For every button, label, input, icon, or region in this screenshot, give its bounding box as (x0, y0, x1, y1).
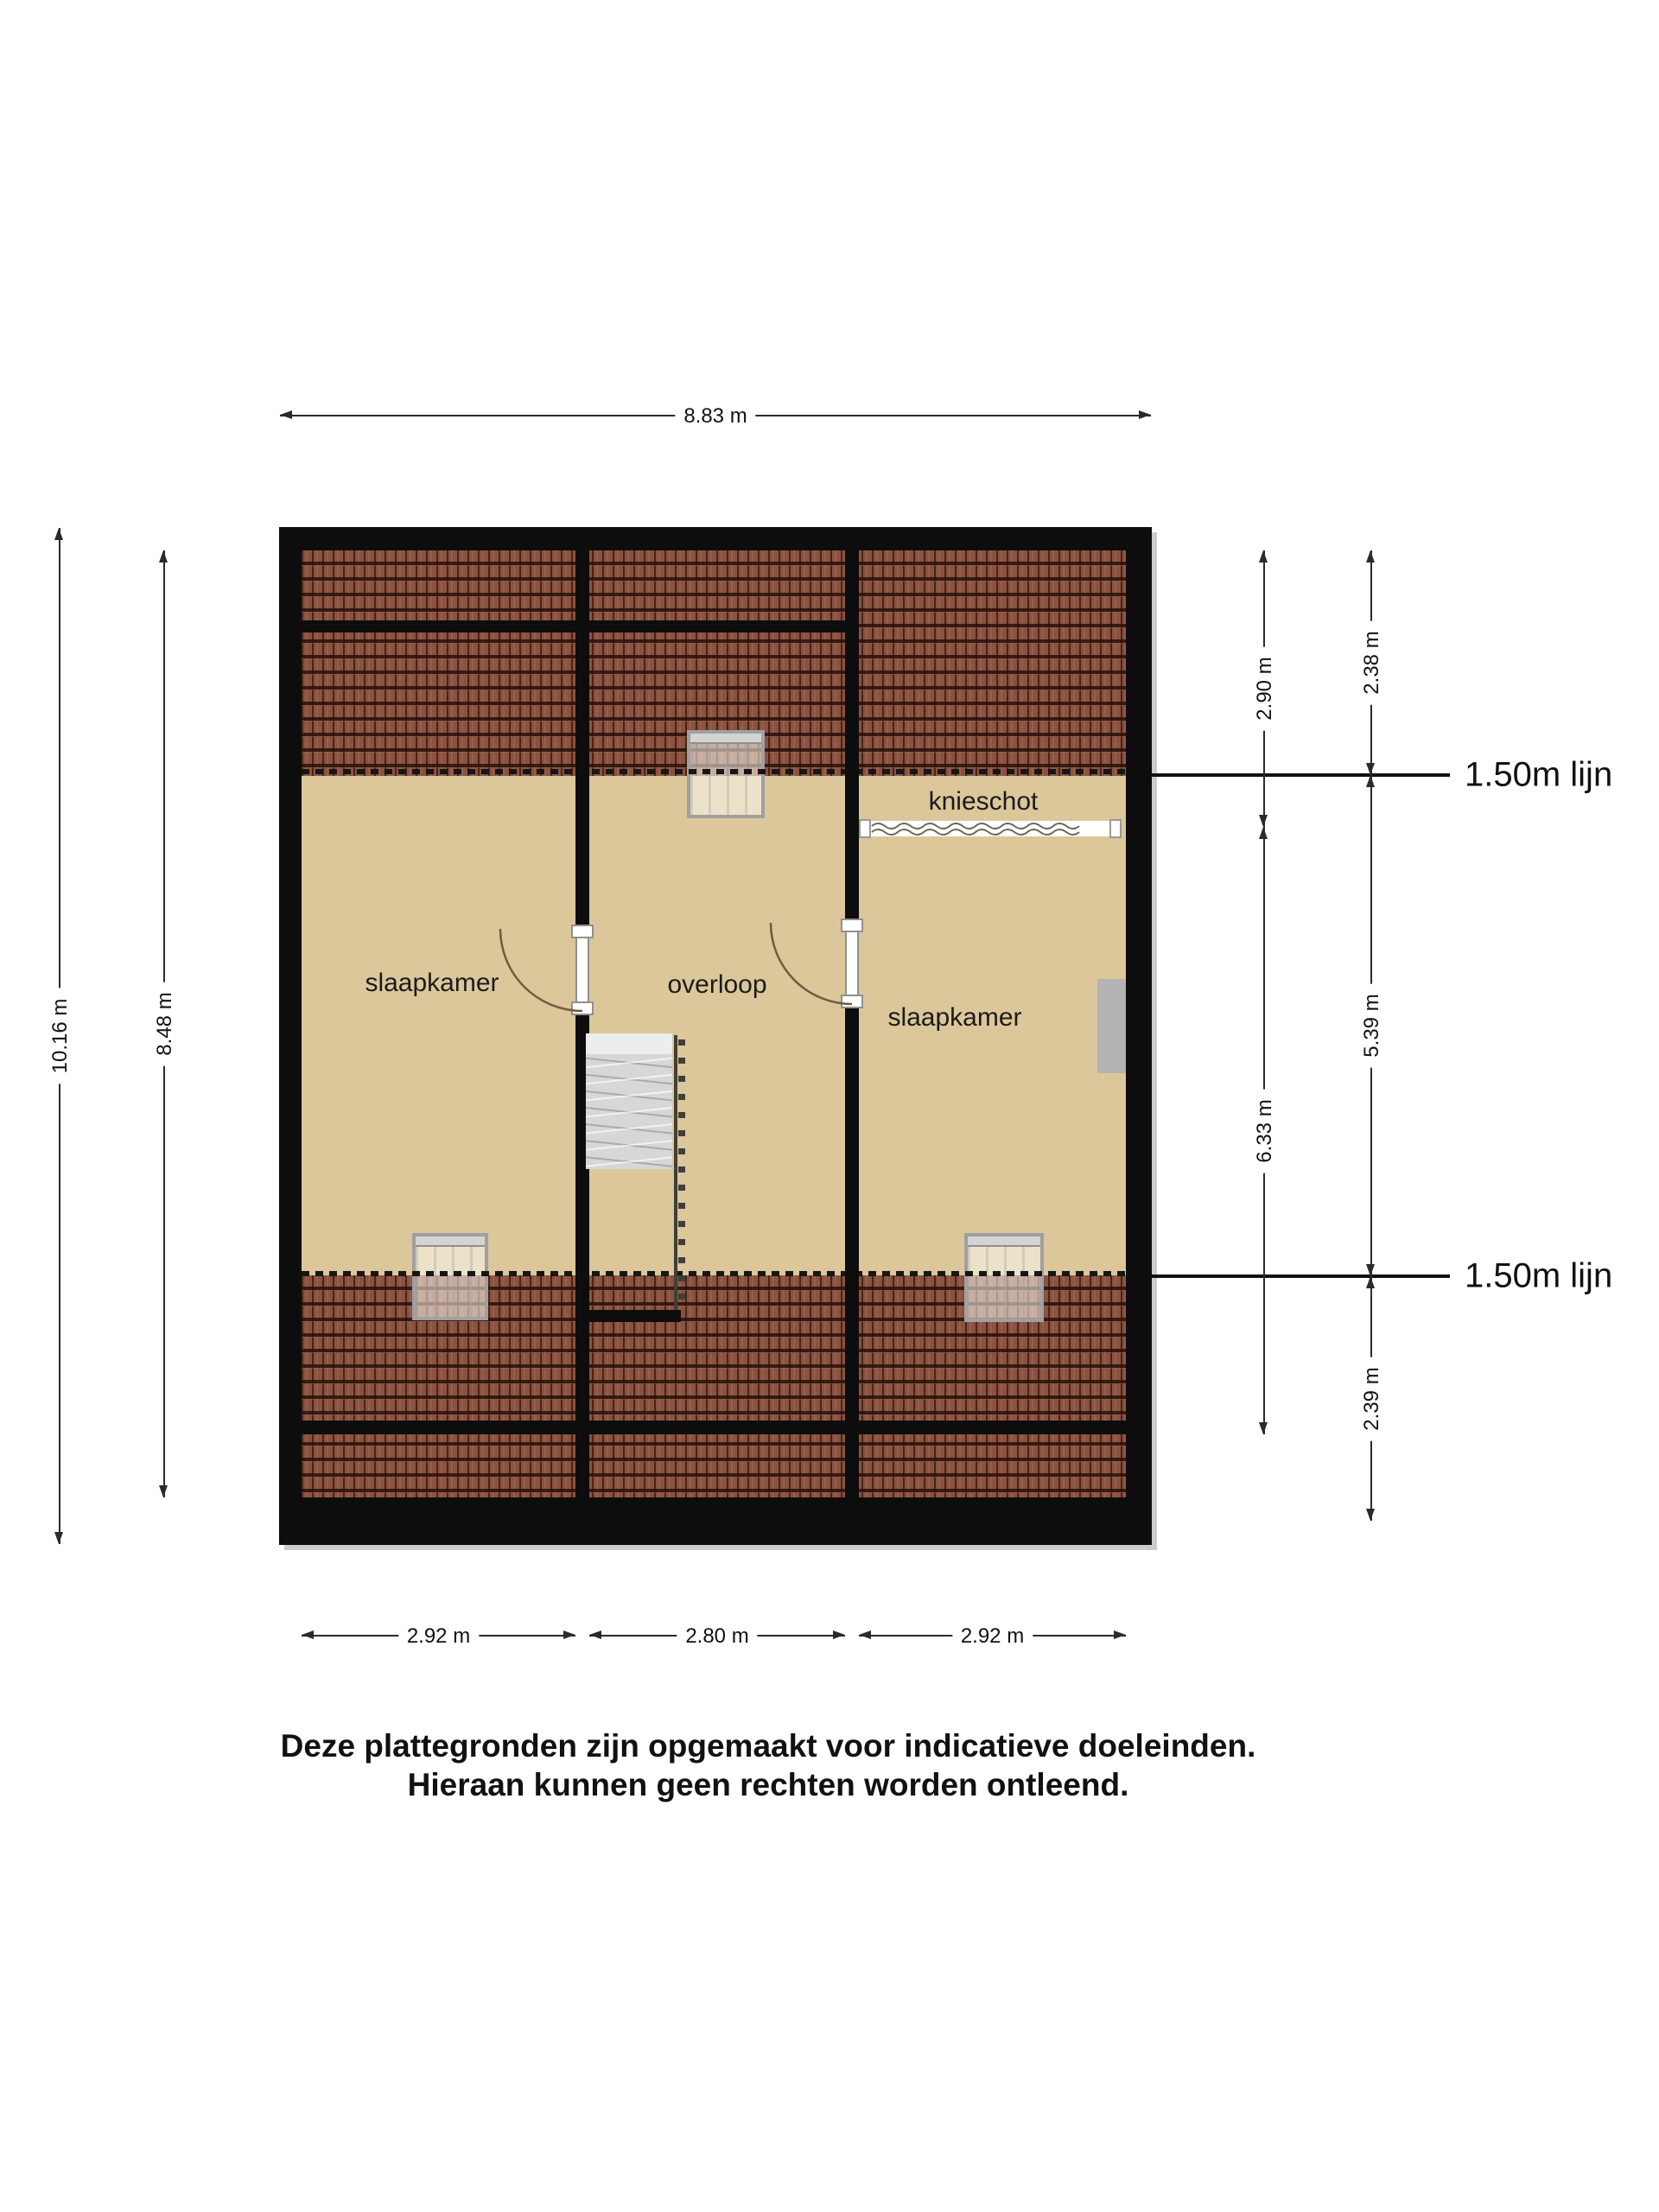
door-swing-arc-right (771, 923, 852, 1004)
dimension-top-width: 8.83 m (280, 415, 1151, 416)
dimension-value: 2.80 m (677, 1624, 757, 1649)
dimension-value: 6.33 m (1253, 1089, 1277, 1173)
dimension-value: 2.92 m (398, 1624, 479, 1649)
knee-wall-label: knieschot (929, 787, 1039, 817)
dimension-bottom-right: 2.92 m (859, 1635, 1126, 1637)
knee-wall-wave-1 (872, 823, 1079, 829)
room-label-bedroom-left: slaapkamer (365, 969, 499, 998)
ref-line-150-top-label: 1.50m lijn (1465, 756, 1612, 795)
dimension-right-outer-bottom: 2.39 m (1370, 1276, 1372, 1521)
disclaimer-line-2: Hieraan kunnen geen rechten worden ontle… (163, 1765, 1373, 1804)
dimension-value: 2.39 m (1360, 1357, 1384, 1440)
dimension-value: 2.92 m (952, 1624, 1033, 1649)
ref-line-150-bottom-label: 1.50m lijn (1465, 1257, 1612, 1296)
disclaimer: Deze plattegronden zijn opgemaakt voor i… (163, 1726, 1373, 1804)
dimension-right-outer-middle: 5.39 m (1370, 775, 1372, 1276)
dimension-bottom-middle: 2.80 m (589, 1635, 845, 1637)
dimension-left-inner-height: 8.48 m (163, 550, 165, 1497)
knee-wall-wave-2 (872, 829, 1079, 835)
dimension-value: 2.38 m (1360, 620, 1384, 704)
dimension-right-inner-top: 2.90 m (1263, 550, 1265, 827)
door-swing-arc-left (500, 929, 582, 1011)
dimension-bottom-left: 2.92 m (302, 1635, 575, 1637)
plan-outer-walls (279, 527, 1152, 1545)
dimension-value: 8.83 m (675, 404, 755, 429)
dimension-right-inner-bottom: 6.33 m (1263, 827, 1265, 1434)
dimension-value: 5.39 m (1360, 983, 1384, 1067)
room-label-bedroom-right: slaapkamer (887, 1003, 1021, 1033)
room-label-landing: overloop (667, 970, 766, 1000)
ref-line-150-top (1152, 773, 1450, 777)
floorplan-page: slaapkamer overloop slaapkamer knieschot… (0, 0, 1659, 2212)
dimension-value: 2.90 m (1253, 646, 1277, 730)
disclaimer-line-1: Deze plattegronden zijn opgemaakt voor i… (163, 1726, 1373, 1765)
dimension-value: 8.48 m (153, 982, 177, 1065)
dimension-left-outer-height: 10.16 m (59, 528, 60, 1544)
dimension-right-outer-top: 2.38 m (1370, 550, 1372, 775)
dimension-value: 10.16 m (48, 988, 73, 1084)
ref-line-150-bottom (1152, 1274, 1450, 1278)
